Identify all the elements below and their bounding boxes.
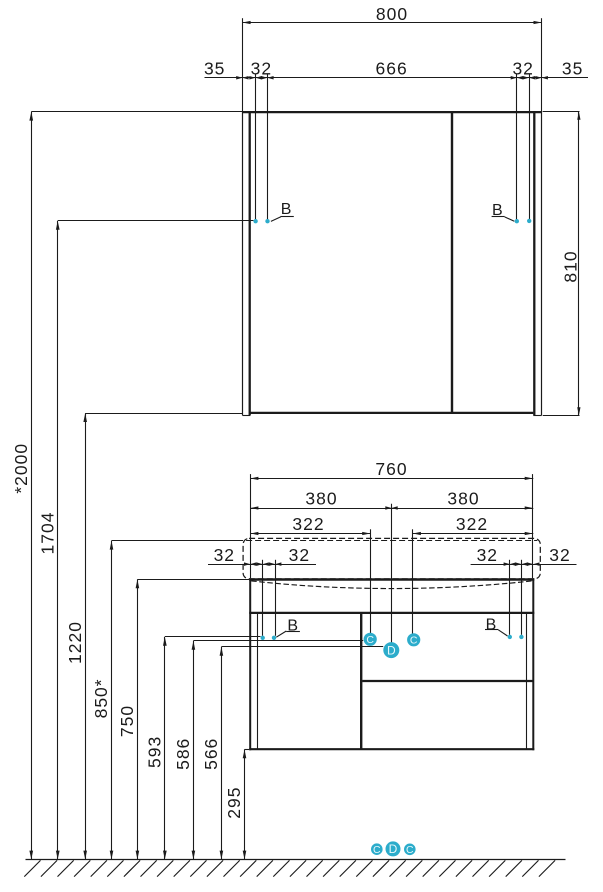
svg-text:32: 32: [289, 545, 310, 565]
svg-text:B: B: [486, 617, 498, 634]
svg-text:810: 810: [561, 250, 581, 282]
svg-text:380: 380: [447, 489, 479, 509]
svg-text:D: D: [389, 842, 398, 856]
svg-text:C: C: [406, 845, 414, 856]
svg-text:32: 32: [251, 58, 272, 78]
svg-text:D: D: [387, 643, 396, 657]
svg-text:760: 760: [375, 459, 407, 479]
svg-text:35: 35: [562, 58, 583, 78]
svg-text:593: 593: [145, 736, 165, 768]
svg-text:322: 322: [456, 514, 488, 534]
svg-text:32: 32: [549, 545, 570, 565]
svg-text:666: 666: [375, 58, 407, 78]
svg-text:295: 295: [224, 786, 244, 818]
svg-text:B: B: [281, 201, 293, 218]
svg-text:566: 566: [201, 738, 221, 770]
svg-text:C: C: [366, 634, 374, 646]
svg-text:750: 750: [117, 705, 137, 737]
svg-text:32: 32: [477, 545, 498, 565]
svg-text:35: 35: [204, 58, 225, 78]
svg-text:850*: 850*: [91, 678, 111, 718]
svg-text:*2000: *2000: [11, 443, 31, 494]
svg-text:32: 32: [512, 58, 533, 78]
svg-text:C: C: [410, 635, 418, 647]
svg-text:586: 586: [173, 738, 193, 770]
svg-text:1220: 1220: [65, 621, 85, 664]
svg-text:32: 32: [214, 545, 235, 565]
svg-text:322: 322: [292, 514, 324, 534]
svg-text:380: 380: [305, 489, 337, 509]
svg-text:1704: 1704: [37, 512, 57, 555]
svg-text:800: 800: [376, 4, 408, 24]
svg-text:C: C: [373, 845, 381, 856]
